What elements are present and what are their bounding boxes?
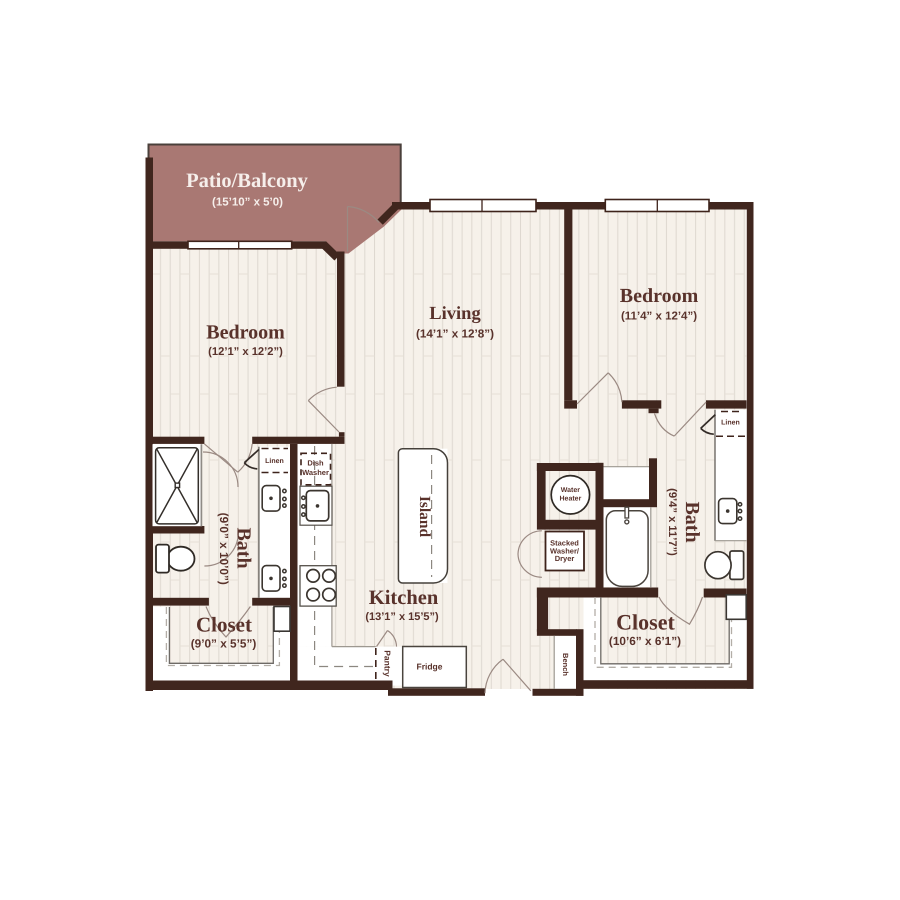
svg-text:(9’4” x 11’7”): (9’4” x 11’7”) — [666, 488, 678, 556]
svg-text:Island: Island — [416, 496, 433, 538]
svg-text:Linen: Linen — [721, 419, 740, 427]
svg-text:Pantry: Pantry — [383, 650, 393, 677]
svg-text:Linen: Linen — [265, 457, 284, 465]
svg-text:(14’1” x 12’8”): (14’1” x 12’8”) — [416, 328, 494, 341]
svg-text:Fridge: Fridge — [417, 662, 443, 672]
svg-text:Living: Living — [429, 304, 481, 324]
svg-text:Closet: Closet — [616, 610, 675, 635]
svg-text:Bath: Bath — [232, 527, 254, 568]
svg-text:Bedroom: Bedroom — [620, 285, 699, 307]
svg-text:(12’1” x 12’2”): (12’1” x 12’2”) — [208, 346, 283, 358]
svg-text:Water: Water — [561, 487, 580, 494]
svg-text:Closet: Closet — [196, 613, 252, 637]
svg-text:(9’0” x 5’5”): (9’0” x 5’5”) — [191, 637, 257, 651]
svg-text:Washer: Washer — [302, 468, 329, 477]
svg-text:Patio/Balcony: Patio/Balcony — [186, 170, 309, 192]
svg-text:Kitchen: Kitchen — [369, 587, 439, 609]
svg-text:(13’1” x 15’5”): (13’1” x 15’5”) — [365, 611, 439, 623]
svg-text:Heater: Heater — [560, 496, 582, 503]
svg-text:Bedroom: Bedroom — [206, 321, 285, 343]
svg-text:Bench: Bench — [561, 653, 570, 676]
svg-text:(11’4” x 12’4”): (11’4” x 12’4”) — [621, 310, 697, 322]
svg-text:Bath: Bath — [681, 501, 703, 542]
svg-text:Dryer: Dryer — [555, 554, 575, 563]
svg-text:(15’10” x 5’0): (15’10” x 5’0) — [212, 196, 283, 208]
svg-text:Dish: Dish — [307, 459, 324, 468]
svg-text:(9’0” x 10’0”): (9’0” x 10’0”) — [217, 513, 231, 585]
svg-text:(10’6” x 6’1”): (10’6” x 6’1”) — [609, 634, 681, 648]
